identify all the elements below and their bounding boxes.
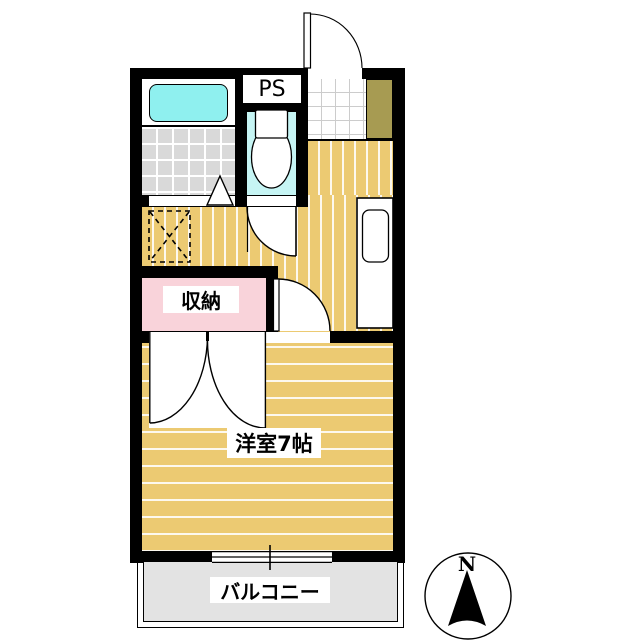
storage-label: 収納 — [181, 285, 221, 314]
compass-north-needle — [448, 570, 486, 626]
closet-double-doors — [150, 331, 266, 428]
entry-door — [304, 13, 362, 68]
main-room-label: 洋室7帖 — [235, 428, 313, 458]
main-room-label-box: 洋室7帖 — [227, 428, 321, 458]
bathroom-folding-door — [207, 176, 233, 205]
room-door — [274, 279, 331, 331]
washing-machine-space — [149, 211, 190, 262]
ps-label: PS — [258, 77, 285, 102]
toilet-fixture — [252, 110, 292, 188]
compass: N — [425, 552, 511, 639]
storage-label-box: 収納 — [163, 286, 239, 313]
balcony-label: バルコニー — [220, 576, 320, 605]
kitchen-sink — [363, 210, 389, 262]
kitchen-unit — [357, 198, 393, 328]
ps-label-box: PS — [240, 72, 304, 106]
plan-linework-overlay: N — [0, 0, 640, 640]
balcony-label-box: バルコニー — [210, 577, 330, 603]
toilet-door — [247, 207, 296, 256]
compass-north-label: N — [458, 552, 476, 576]
floor-plan-canvas: N PS 収納 洋室7帖 バルコニー — [0, 0, 640, 640]
sliding-window — [212, 545, 332, 570]
